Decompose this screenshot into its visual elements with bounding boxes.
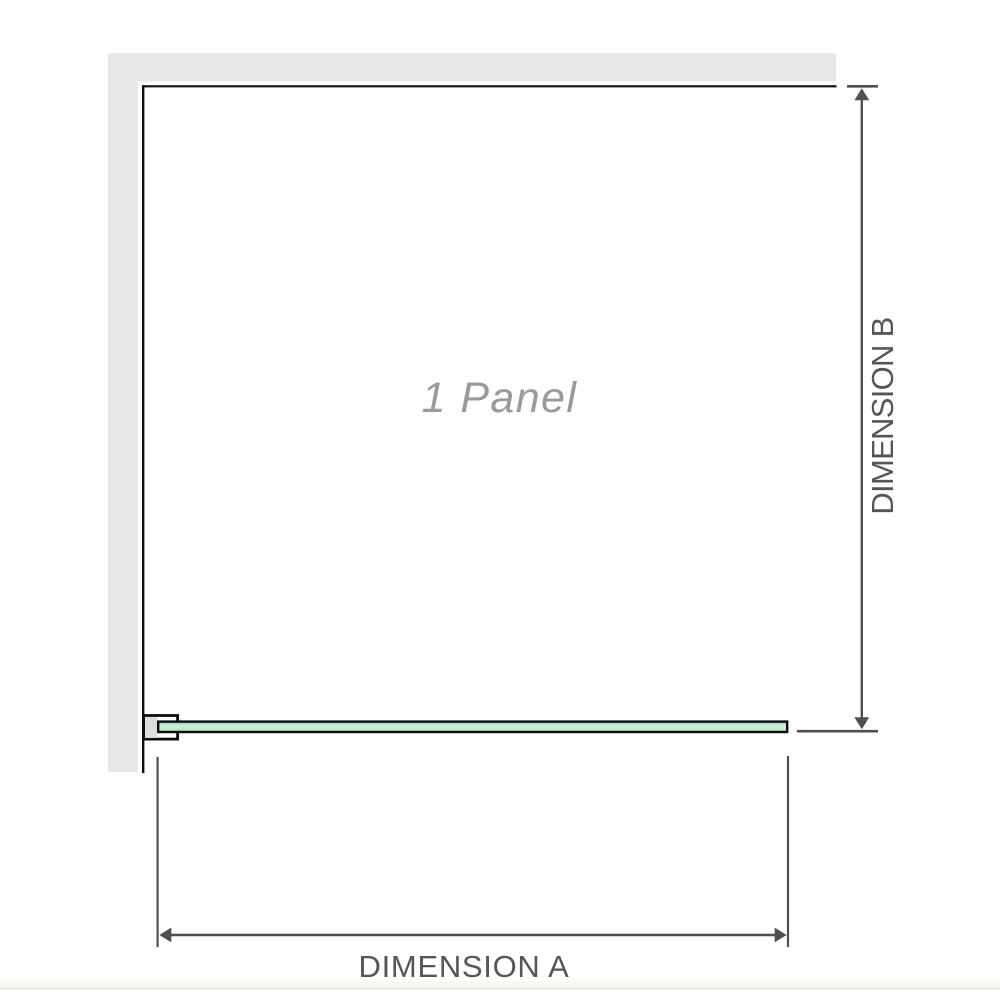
svg-text:DIMENSION A: DIMENSION A bbox=[359, 949, 570, 984]
svg-text:DIMENSION B: DIMENSION B bbox=[865, 317, 900, 514]
svg-text:1 Panel: 1 Panel bbox=[422, 374, 578, 422]
